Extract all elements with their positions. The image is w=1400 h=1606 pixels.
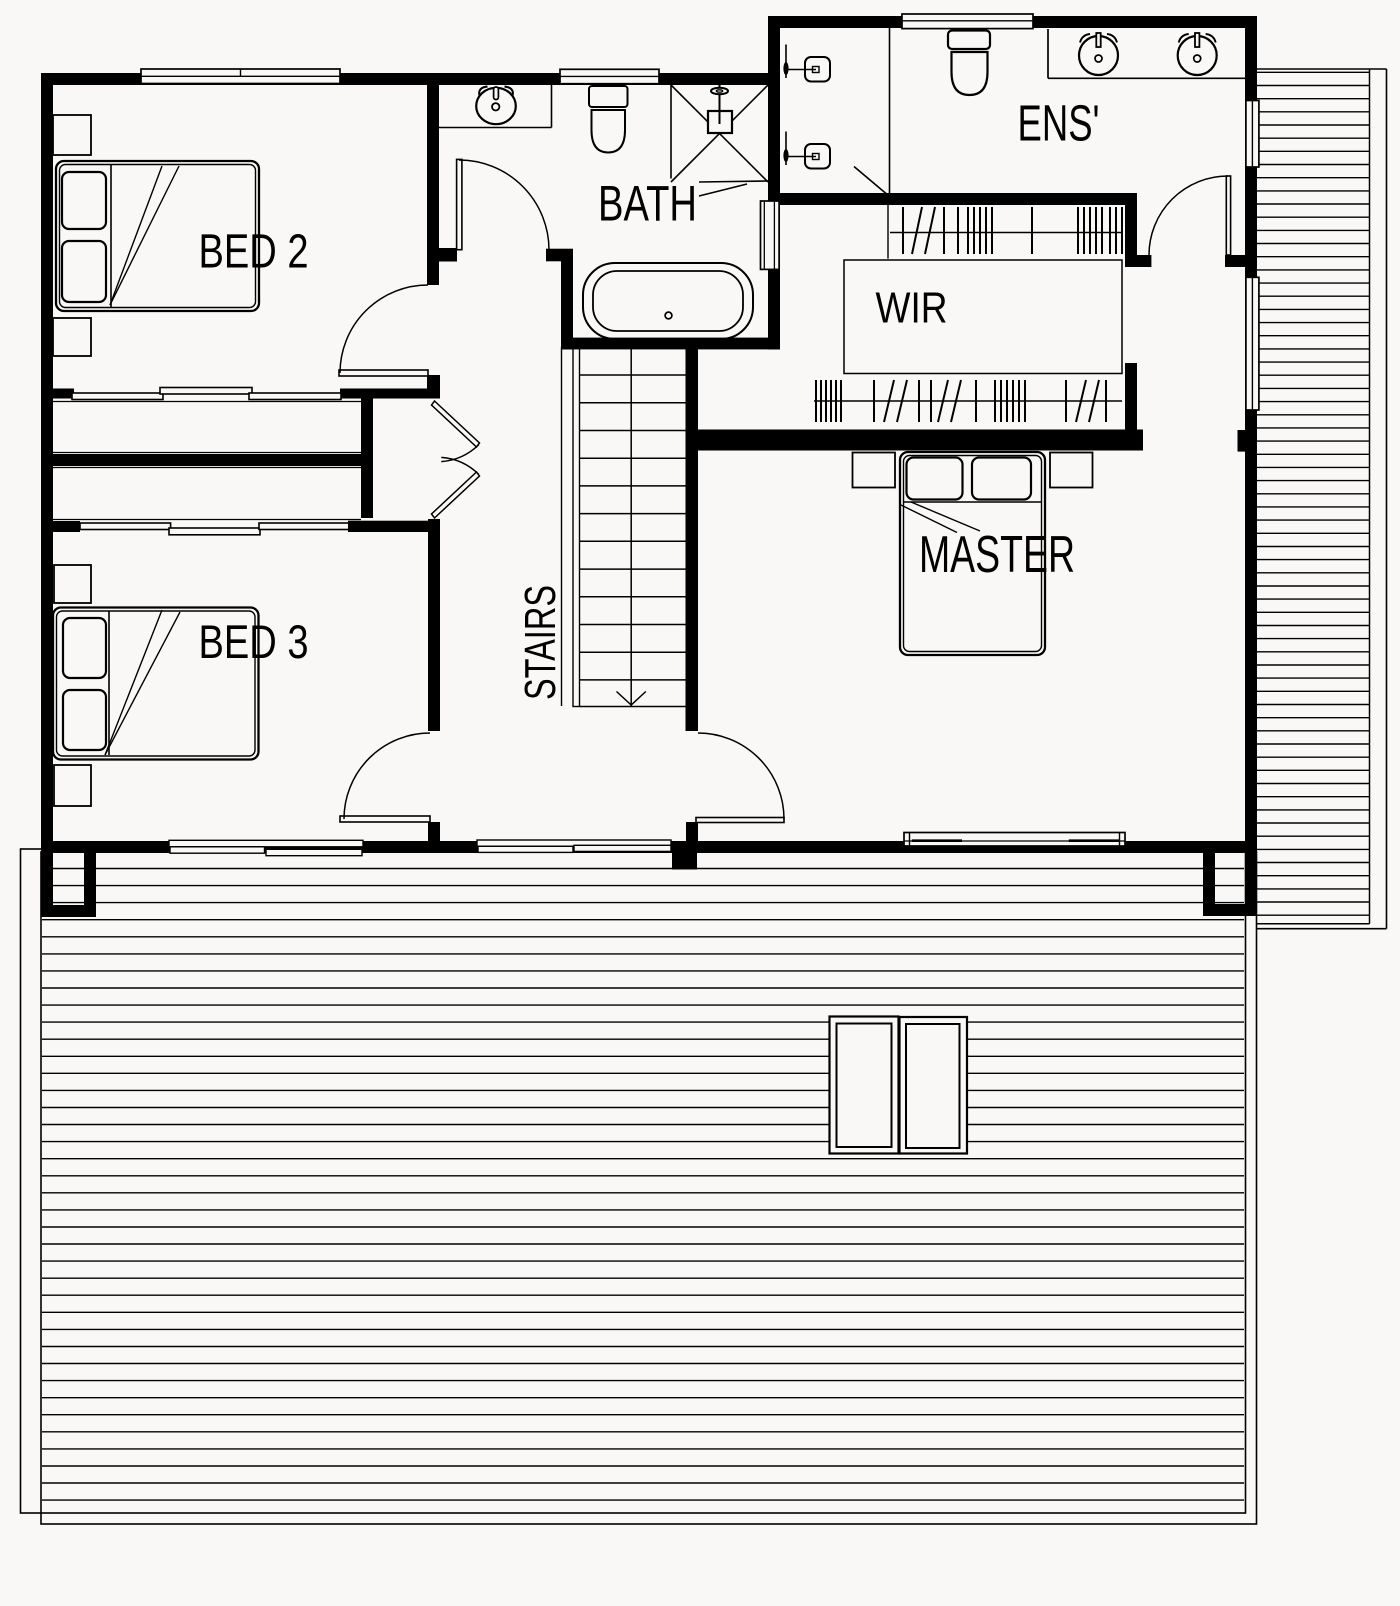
svg-text:BED 2: BED 2 <box>199 225 309 279</box>
svg-text:STAIRS: STAIRS <box>517 585 565 700</box>
svg-text:ENS': ENS' <box>1018 95 1100 152</box>
svg-text:BED 3: BED 3 <box>199 615 309 668</box>
svg-text:BATH: BATH <box>598 176 697 232</box>
svg-text:MASTER: MASTER <box>919 526 1075 584</box>
svg-text:WIR: WIR <box>876 285 948 333</box>
